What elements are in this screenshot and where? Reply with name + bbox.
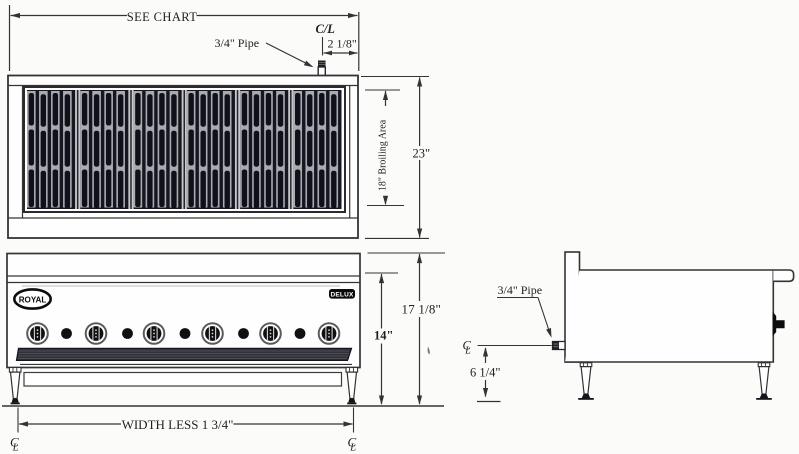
svg-text:L: L — [464, 346, 471, 357]
svg-text:6 1/4": 6 1/4" — [470, 366, 500, 380]
svg-text:L: L — [349, 442, 356, 454]
svg-text:17 1/8": 17 1/8" — [402, 302, 442, 317]
svg-text:WIDTH LESS 1 3/4": WIDTH LESS 1 3/4" — [122, 417, 234, 432]
svg-text:23": 23" — [413, 147, 431, 161]
svg-text:DELUX: DELUX — [330, 291, 353, 298]
svg-text:3/4" Pipe: 3/4" Pipe — [215, 36, 260, 50]
svg-text:3/4" Pipe: 3/4" Pipe — [498, 283, 543, 297]
svg-text:2 1/8": 2 1/8" — [328, 37, 357, 51]
svg-text:18" Broiling Area: 18" Broiling Area — [378, 119, 389, 191]
svg-text:14": 14" — [374, 329, 393, 343]
svg-text:SEE CHART: SEE CHART — [127, 10, 198, 24]
svg-text:C/L: C/L — [316, 22, 336, 36]
svg-text:ROYAL: ROYAL — [19, 295, 47, 304]
svg-text:L: L — [12, 442, 19, 454]
